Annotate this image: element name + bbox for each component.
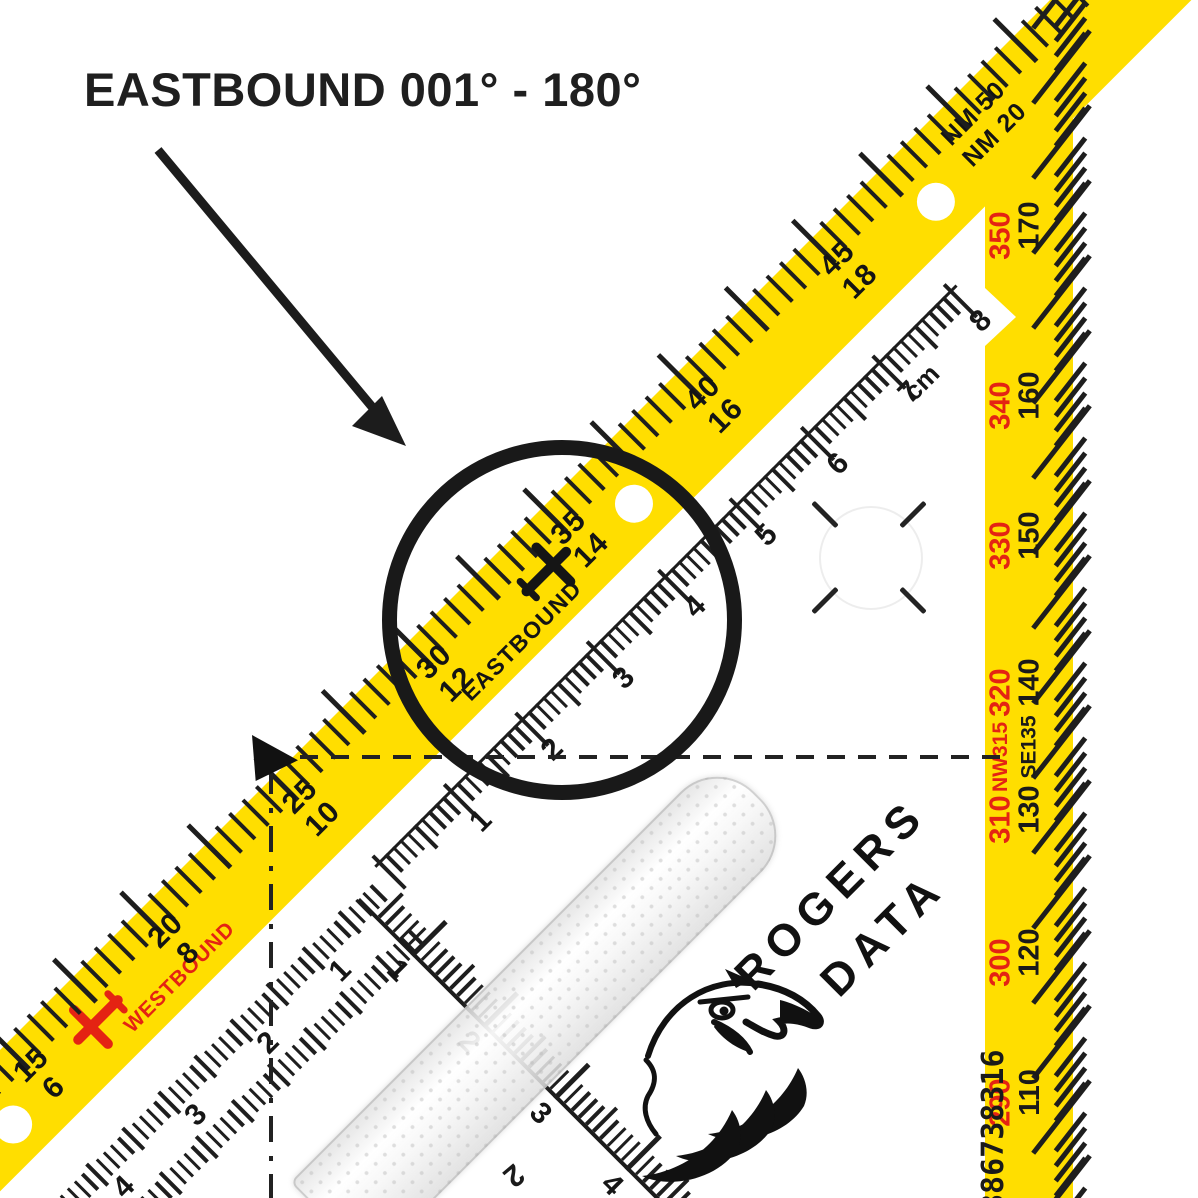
barcode-number: 386738316 bbox=[976, 1049, 1011, 1198]
band-tick bbox=[1061, 0, 1089, 7]
registration-mark bbox=[899, 501, 927, 529]
cm-tick bbox=[841, 396, 866, 421]
band-tick bbox=[723, 286, 769, 332]
plotter-annotated-image: EASTBOUND WESTBOUND NM 50 NM 20 15620825… bbox=[0, 0, 1198, 1198]
band-tick bbox=[618, 422, 646, 450]
band-tick bbox=[186, 824, 232, 870]
page-title: EASTBOUND 001° - 180° bbox=[84, 62, 641, 117]
band-tick bbox=[725, 315, 753, 343]
annotation-circle bbox=[382, 440, 742, 800]
band-tick bbox=[858, 152, 904, 198]
band-tick bbox=[215, 825, 243, 853]
band-tick bbox=[188, 852, 216, 880]
band-tick bbox=[886, 154, 914, 182]
band-tick bbox=[1021, 19, 1049, 47]
dashed-vertical-line bbox=[269, 768, 273, 1198]
registration-mark bbox=[899, 587, 927, 615]
band-tick bbox=[631, 409, 659, 437]
band-tick bbox=[320, 689, 366, 735]
registration-mark bbox=[811, 587, 839, 615]
band-tick bbox=[765, 275, 793, 303]
band-tick bbox=[992, 18, 1038, 64]
cm-tick bbox=[770, 467, 795, 492]
band-tick bbox=[362, 678, 390, 706]
band-tick bbox=[322, 718, 350, 746]
band-tick bbox=[228, 812, 256, 840]
band-tick bbox=[94, 946, 122, 974]
band-tick bbox=[52, 958, 98, 1004]
band-tick bbox=[860, 181, 888, 209]
band-tick bbox=[349, 691, 377, 719]
band-tick bbox=[1034, 6, 1062, 34]
band-tick bbox=[1048, 0, 1076, 21]
brand-logo-text: ROGERS DATA bbox=[719, 732, 1030, 1043]
band-tick bbox=[752, 288, 780, 316]
